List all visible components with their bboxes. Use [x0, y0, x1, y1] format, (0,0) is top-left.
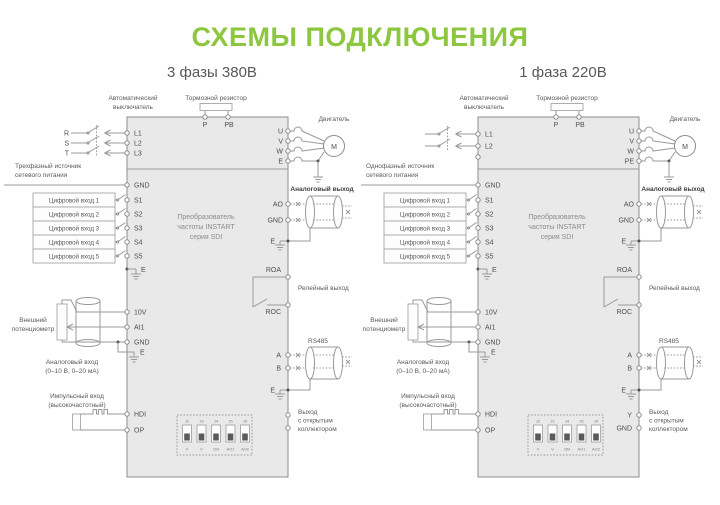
terminal-b: B	[627, 366, 632, 373]
terminal-b: B	[276, 366, 281, 373]
source-label: Однофазный источник	[366, 162, 434, 170]
terminal-10v: 10V	[134, 310, 147, 317]
motor-label: Двигатель	[670, 116, 701, 123]
analog-input-label: Аналоговый вход	[46, 358, 99, 366]
dip-bottom-label: V	[200, 447, 203, 452]
open-collector-label: коллектором	[649, 426, 688, 433]
terminal-gnd: GND	[134, 183, 150, 190]
analog-output-label: Аналоговый выход	[641, 185, 704, 193]
diagram-subtitle: 1 фаза 220В	[519, 64, 606, 81]
terminal-s1: S1	[485, 198, 494, 205]
dip-bottom-label: V	[537, 447, 540, 452]
analog-output-label: Аналоговый выход	[290, 185, 353, 193]
source-label: Трехфазный источник	[15, 162, 81, 170]
dip-bottom-label: AO1	[577, 447, 586, 452]
digital-input-label: Цифровой вход 1	[400, 198, 451, 205]
terminal-l3: L3	[134, 151, 142, 158]
potentiometer-label: Внешний	[370, 316, 398, 324]
digital-input-label: Цифровой вход 5	[400, 254, 451, 261]
terminal-op: OP	[134, 428, 144, 435]
rs485-label: RS485	[308, 338, 328, 345]
diagram-single-phase: 1 фаза 220В Преобразователь частоты INST…	[351, 0, 711, 505]
converter-label: серия SDI	[190, 234, 223, 241]
potentiometer-label: потенциометр	[12, 326, 55, 333]
terminal-e-ao: E	[270, 239, 275, 246]
terminal-e-motor: E	[278, 159, 283, 166]
terminal-op: OP	[485, 428, 495, 435]
converter-label: Преобразователь	[177, 213, 235, 221]
source-label: сетевого питания	[15, 172, 68, 179]
terminal-ao: AO	[624, 202, 635, 209]
dip-bottom-label: ON	[213, 447, 219, 452]
digital-input-label: Цифровой вход 5	[49, 254, 100, 261]
earth-icon	[313, 177, 323, 182]
analog-input-label: Аналоговый вход	[397, 358, 450, 366]
terminal-ai1: AI1	[485, 325, 496, 332]
shielded-cable-icon	[657, 347, 694, 379]
terminal-u: U	[278, 129, 283, 136]
terminal-e-rs485: E	[270, 388, 275, 395]
phase-t: T	[65, 151, 70, 158]
terminal-l2: L2	[134, 141, 142, 148]
terminal-s3: S3	[485, 226, 494, 233]
terminal-s4: S4	[485, 240, 494, 247]
pulse-input-label: Импульсный вход	[50, 392, 104, 400]
terminal-e-ain: E	[140, 350, 145, 357]
motor-letter: М	[682, 144, 688, 151]
terminal-gnd-ain: GND	[485, 340, 501, 347]
relay-output-label: Релейный выход	[298, 284, 349, 292]
phase-s: S	[64, 141, 69, 148]
terminal-pe: PE	[625, 159, 635, 166]
terminal-gnd-oc: GND	[616, 426, 632, 433]
analog-input-label: (0–10 В, 0–20 мА)	[45, 368, 99, 375]
breaker-label: Автоматический	[459, 94, 508, 102]
terminal-pb: PB	[575, 122, 585, 129]
shielded-cable-icon	[427, 298, 451, 347]
terminal-l1: L1	[485, 132, 493, 139]
terminal-roc: ROC	[265, 309, 281, 316]
digital-input-label: Цифровой вход 2	[49, 212, 100, 219]
terminal-e: E	[492, 267, 497, 274]
terminal-l1: L1	[134, 131, 142, 138]
terminal-s5: S5	[485, 254, 494, 261]
pulse-input-label: (высокочастотный)	[48, 401, 105, 409]
terminal-gnd: GND	[485, 183, 501, 190]
terminal-s2: S2	[485, 212, 494, 219]
dip-bottom-label: AO1	[226, 447, 235, 452]
dip-bottom-label: AO2	[592, 447, 601, 452]
motor-label: Двигатель	[319, 116, 350, 123]
brake-resistor-label: Тормозной резистор	[536, 94, 598, 102]
terminal-u: U	[629, 129, 634, 136]
terminal-w: W	[627, 149, 634, 156]
breaker-label: Автоматический	[108, 94, 157, 102]
open-collector-label: с открытым	[298, 418, 333, 425]
breaker-label: выключатель	[464, 104, 505, 111]
phase-r: R	[64, 131, 69, 138]
dip-bottom-label: ON	[564, 447, 570, 452]
pulse-input-label: (высокочастотный)	[399, 401, 456, 409]
shielded-cable-icon	[306, 347, 343, 379]
terminal-s5: S5	[134, 254, 143, 261]
terminal-roa: ROA	[617, 267, 633, 274]
terminal-hdi: HDI	[485, 412, 497, 419]
source-label: сетевого питания	[366, 172, 419, 179]
pulse-waveform-icon	[81, 410, 125, 415]
digital-input-label: Цифровой вход 4	[400, 240, 451, 247]
dip-bottom-label: V	[551, 447, 554, 452]
converter-box: Преобразователь частоты INSTART серия SD…	[127, 117, 288, 477]
converter-label: частоты INSTART	[528, 224, 586, 231]
terminal-p: P	[203, 122, 208, 129]
relay-output-label: Релейный выход	[649, 284, 700, 292]
terminal-pb: PB	[224, 122, 234, 129]
terminal-roa: ROA	[266, 267, 282, 274]
terminal-w: W	[276, 149, 283, 156]
wiring-diagram-page: СХЕМЫ ПОДКЛЮЧЕНИЯ 3 фазы 380В Преобразов…	[0, 0, 720, 505]
terminal-hdi: HDI	[134, 412, 146, 419]
terminal-a: A	[627, 353, 632, 360]
open-collector-label: с открытым	[649, 418, 684, 425]
terminal-10v: 10V	[485, 310, 498, 317]
brake-resistor-label: Тормозной резистор	[185, 94, 247, 102]
terminal-ai1: AI1	[134, 325, 145, 332]
open-collector-label: Выход	[649, 409, 669, 416]
shielded-cable-icon	[306, 196, 343, 228]
potentiometer-symbol	[57, 304, 67, 340]
digital-input-label: Цифровой вход 3	[49, 226, 100, 233]
shielded-cable-icon	[76, 298, 100, 347]
analog-input-label: (0–10 В, 0–20 мА)	[396, 368, 450, 375]
terminal-v: V	[278, 139, 283, 146]
breaker-label: выключатель	[113, 104, 154, 111]
terminal-e-rs485: E	[621, 388, 626, 395]
open-collector-output: Выход с открытым коллектором	[286, 409, 337, 433]
terminal-e-ain: E	[491, 350, 496, 357]
terminal-v: V	[629, 139, 634, 146]
terminal-s2: S2	[134, 212, 143, 219]
potentiometer-symbol	[408, 304, 418, 340]
terminal-s1: S1	[134, 198, 143, 205]
diagram-three-phase: 3 фазы 380В Преобразователь частоты INST…	[0, 0, 360, 505]
converter-label: Преобразователь	[528, 213, 586, 221]
terminal-p: P	[554, 122, 559, 129]
rs485-label: RS485	[659, 338, 679, 345]
terminal-e: E	[141, 267, 146, 274]
earth-icon	[664, 177, 674, 182]
terminal-ao: AO	[273, 202, 284, 209]
terminal-s4: S4	[134, 240, 143, 247]
terminal-a: A	[276, 353, 281, 360]
terminal-roc: ROC	[616, 309, 632, 316]
diagram-subtitle: 3 фазы 380В	[167, 64, 257, 81]
dip-bottom-label: AO2	[241, 447, 250, 452]
converter-label: частоты INSTART	[177, 224, 235, 231]
terminal-e-ao: E	[621, 239, 626, 246]
dip-bottom-label: V	[186, 447, 189, 452]
potentiometer-label: потенциометр	[363, 326, 406, 333]
terminal-l2: L2	[485, 144, 493, 151]
open-collector-label: Выход	[298, 409, 318, 416]
converter-label: серия SDI	[541, 234, 574, 241]
resistor-symbol	[200, 104, 232, 111]
resistor-symbol	[551, 104, 583, 111]
digital-input-label: Цифровой вход 4	[49, 240, 100, 247]
converter-box: Преобразователь частоты INSTART серия SD…	[478, 117, 639, 477]
potentiometer-label: Внешний	[19, 316, 47, 324]
open-collector-label: коллектором	[298, 426, 337, 433]
terminal-gnd-ao: GND	[618, 218, 634, 225]
digital-input-label: Цифровой вход 3	[400, 226, 451, 233]
shielded-cable-icon	[657, 196, 694, 228]
pulse-waveform-icon	[432, 410, 476, 415]
digital-input-label: Цифровой вход 2	[400, 212, 451, 219]
terminal-s3: S3	[134, 226, 143, 233]
digital-input-label: Цифровой вход 1	[49, 198, 100, 205]
terminal-gnd-ain: GND	[134, 340, 150, 347]
pulse-input-label: Импульсный вход	[401, 392, 455, 400]
terminal-y: Y	[627, 413, 632, 420]
motor-letter: М	[331, 144, 337, 151]
terminal-gnd-ao: GND	[267, 218, 283, 225]
